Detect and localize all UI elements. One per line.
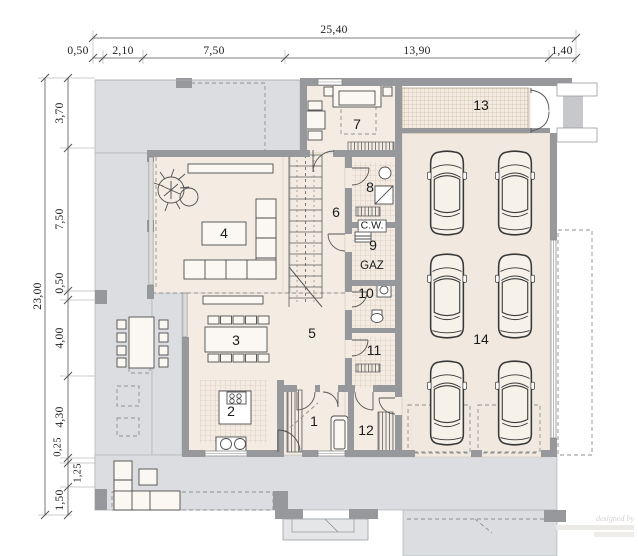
room-label-3: 3 [232, 332, 240, 348]
dim-left-seg-1: 3,70 [54, 102, 66, 123]
room-label-4: 4 [220, 225, 228, 241]
room-label-12: 12 [358, 422, 374, 438]
dim-left-overall: 23,00 [32, 282, 44, 309]
room-label-14: 14 [473, 331, 489, 347]
cw-label: C.W. [358, 220, 387, 233]
room-label-11: 11 [367, 342, 382, 358]
storage-shelf-strip [402, 88, 528, 133]
dim-left-seg-2: 7,50 [54, 208, 66, 229]
room-label-9: 9 [369, 237, 377, 253]
dim-left-seg-5: 4,30 [54, 406, 66, 427]
dim-left-seg-3: 0,50 [54, 272, 66, 293]
room-label-1: 1 [310, 413, 318, 429]
floor-plan-canvas: 1 2 3 4 5 6 7 8 9 10 11 12 13 14 C.W. GA… [0, 0, 638, 556]
watermark-blur-line2 [594, 532, 634, 537]
room-label-2: 2 [227, 403, 235, 419]
dim-top-seg-4: 13,90 [403, 45, 430, 57]
dim-top-seg-2: 2,10 [112, 45, 133, 57]
dim-left-seg-8: 1,50 [54, 489, 66, 510]
room-label-5: 5 [308, 325, 316, 341]
dim-top-seg-1: 0,50 [67, 45, 88, 57]
dim-top-overall: 25,40 [320, 24, 347, 36]
car-icon [495, 254, 534, 338]
room-label-7: 7 [353, 116, 361, 132]
dim-left-seg-7: 1,25 [73, 463, 84, 483]
car-icon [495, 361, 534, 445]
watermark-text: designed by [556, 514, 634, 523]
room-label-13: 13 [473, 97, 489, 113]
watermark-blur-line [556, 525, 634, 530]
car-icon [427, 151, 466, 235]
car-icon [495, 151, 534, 235]
floor-plan-drawing [0, 0, 638, 556]
dim-left-seg-4: 4,00 [54, 327, 66, 348]
room-label-6: 6 [332, 204, 340, 220]
room-label-10: 10 [358, 285, 374, 301]
room-label-8: 8 [366, 179, 374, 195]
designer-watermark: designed by [556, 514, 634, 537]
gaz-label: GAZ [360, 260, 384, 272]
entrance-steps [283, 519, 368, 540]
dim-top-seg-5: 1,40 [551, 45, 572, 57]
car-icon [427, 254, 466, 338]
dim-top-seg-3: 7,50 [203, 45, 224, 57]
car-icon [427, 361, 466, 445]
dim-left-seg-6: 0,25 [53, 437, 64, 457]
